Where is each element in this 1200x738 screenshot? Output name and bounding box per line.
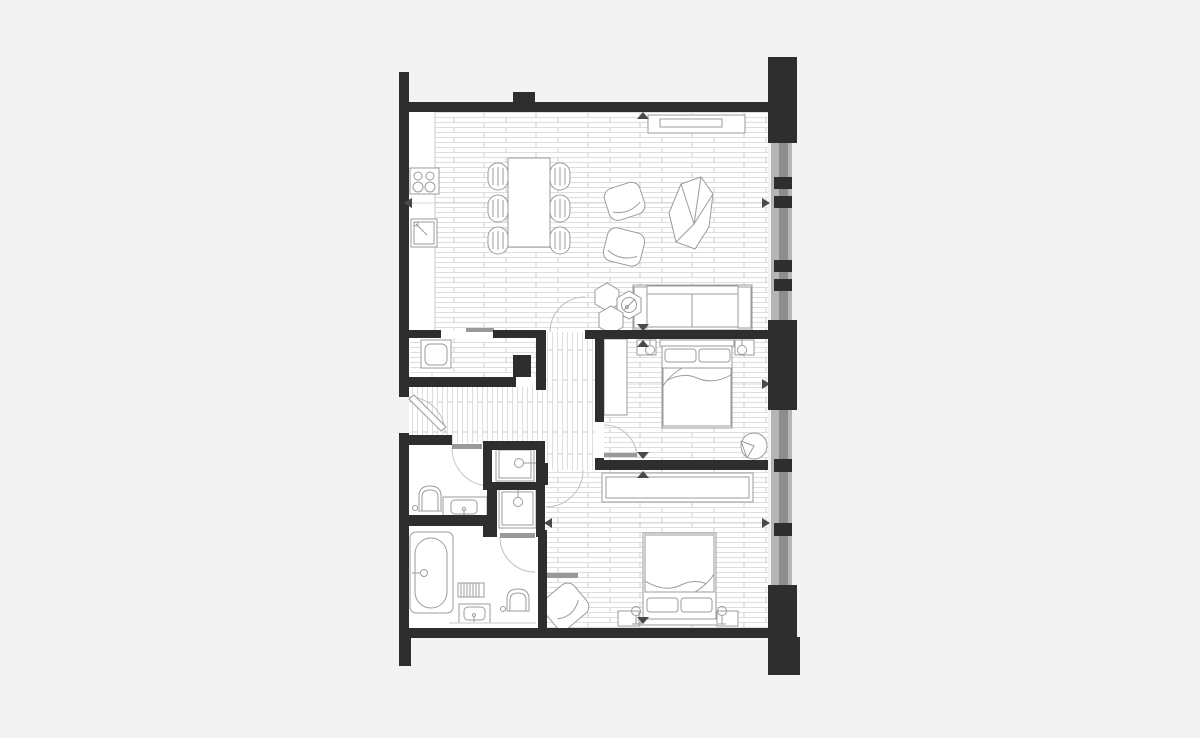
pocket-door-leaf <box>545 573 578 578</box>
towel-radiator-icon <box>458 583 484 597</box>
wall-right-top-block <box>768 57 797 143</box>
dining-table <box>508 158 550 247</box>
wall-bottom-right-stub <box>768 637 800 675</box>
window-mullion <box>774 459 792 472</box>
wardrobe <box>604 339 627 415</box>
wall-shower1-left <box>483 441 492 489</box>
wall-closet-bottom <box>409 377 516 387</box>
closet-sliding-door-leaf <box>466 328 494 332</box>
washing-machine-icon <box>421 340 451 368</box>
wall-top <box>399 102 770 112</box>
headboard <box>660 340 734 346</box>
bedside-table <box>735 338 754 355</box>
wall-bedroom1-left <box>595 339 604 422</box>
wall-shower2-bottom-corner <box>483 526 497 537</box>
wall-top-stub <box>513 92 535 102</box>
wall-left-lower <box>399 433 409 628</box>
double-bed <box>660 340 734 428</box>
hallway-items <box>421 340 451 368</box>
window-band-bedrooms <box>771 410 792 585</box>
wall-living-bedroom1 <box>585 330 768 339</box>
vanity-basin-icon <box>443 497 487 517</box>
sofa <box>633 285 752 330</box>
window-mullion <box>774 279 792 291</box>
wall-bottom <box>399 628 770 638</box>
shower-tray-icon <box>496 447 536 481</box>
window-mullion <box>774 260 792 272</box>
wall-bottom-left-stub <box>399 638 411 666</box>
wall-bathroom-right <box>538 530 547 628</box>
floor-plan-drawing <box>0 0 1200 733</box>
wall-left-upper <box>399 72 409 397</box>
bedroom1-door-leaf <box>604 453 637 457</box>
floor-plan-page <box>0 0 1200 733</box>
round-side-table <box>741 433 767 459</box>
hallway-column-floor <box>546 332 595 470</box>
bathtub-icon <box>410 532 453 613</box>
hob-icon <box>410 168 439 194</box>
shower-tray-icon <box>499 489 536 528</box>
pillow <box>647 598 678 612</box>
pillow <box>699 349 730 362</box>
window-band-living <box>771 143 792 320</box>
window-mullion <box>774 523 792 536</box>
kitchen-sink-icon <box>411 219 437 247</box>
wall-living-closet-left <box>409 330 441 338</box>
window-mullion <box>774 196 792 208</box>
headboard <box>641 619 718 625</box>
ensuite-door-leaf <box>452 444 482 449</box>
wall-right-bottom-block <box>768 585 797 638</box>
service-duct <box>513 355 531 377</box>
wall-right-mid-block <box>768 320 797 410</box>
double-bed <box>641 533 718 625</box>
wall-shower2-right <box>536 482 545 537</box>
sideboard <box>648 115 745 133</box>
bathroom-door-leaf <box>500 533 535 538</box>
pillow <box>681 598 712 612</box>
wardrobe-run <box>602 473 753 502</box>
wall-closet-right <box>536 332 546 390</box>
pillow <box>665 349 696 362</box>
duvet <box>645 535 714 592</box>
duvet <box>663 368 731 426</box>
wall-bedroom1-bedroom2 <box>595 460 768 470</box>
wall-ensuite-bottom <box>409 515 490 526</box>
window-mullion <box>774 177 792 189</box>
wall-ensuite-top <box>409 435 452 445</box>
wall-jamb-stub <box>538 463 548 485</box>
